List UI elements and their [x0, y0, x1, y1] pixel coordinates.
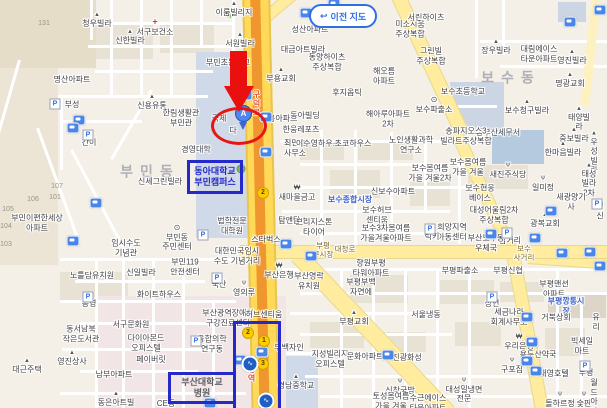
street — [468, 270, 471, 408]
map-label: ▲중보빌라 — [559, 127, 588, 143]
bus-stop-icon[interactable] — [280, 239, 293, 250]
map-label: 보수봄여름 가을 겨울2차 — [408, 163, 451, 182]
villa-icon: ▲ — [505, 99, 549, 106]
street — [354, 130, 357, 248]
highlight-box-donga-campus: 동아대학교 부민캠퍼스 — [187, 160, 243, 194]
map-label: ▲우성빌라 — [588, 131, 601, 176]
villa-icon: ▲ — [565, 106, 593, 113]
street — [58, 95, 208, 98]
road-daecheongro — [240, 245, 607, 259]
bus-stop-icon[interactable] — [529, 233, 542, 244]
street — [455, 105, 497, 108]
building-block — [350, 275, 408, 303]
map-label: 신세그린빌라 — [138, 177, 182, 187]
bus-stop-icon[interactable] — [521, 312, 534, 323]
map-label: ▲영진빌라 — [557, 49, 586, 65]
parking-icon[interactable]: P — [191, 336, 202, 347]
map-label: ▲보수청구빌라 — [505, 99, 549, 115]
red-arrow-shaft — [230, 51, 247, 88]
street — [80, 322, 220, 325]
building-block — [455, 322, 501, 346]
street — [580, 300, 583, 408]
map-label: 보수허브 센티움 — [362, 205, 391, 224]
villa-icon: ▲ — [555, 72, 584, 79]
undo-arrow-icon: ↩ — [320, 11, 328, 22]
map-label: 해오름 아파트 — [373, 66, 395, 85]
bus-stop-icon[interactable] — [521, 356, 534, 367]
parking-icon[interactable]: P — [425, 224, 436, 235]
street — [320, 130, 323, 248]
villa-icon: ▲ — [559, 127, 588, 134]
highlight-box-pnu-hospital: 부산대학교 병원 — [168, 372, 236, 404]
map-label: ▲영진상사 — [57, 350, 86, 366]
bus-stop-icon[interactable] — [594, 261, 607, 272]
villa-icon: ▲ — [545, 141, 582, 148]
street — [110, 89, 153, 160]
map-label: ⊙부민동 주민센터 — [162, 224, 191, 252]
street — [62, 348, 214, 351]
road — [388, 0, 468, 134]
bus-stop-icon[interactable] — [305, 251, 318, 262]
map-label: 한림생활관 부민관 — [163, 108, 200, 127]
villa-icon: ▲ — [588, 131, 601, 138]
map-label: 대림에이스 타운아파트 — [521, 44, 558, 63]
parking-icon[interactable]: P — [198, 230, 209, 241]
bus-stop-icon[interactable] — [530, 366, 543, 377]
street — [95, 70, 213, 73]
street — [556, 268, 559, 408]
building-block — [492, 130, 544, 164]
map-label: 한웅레포츠 — [283, 125, 320, 135]
map-label: ▲태양빌라 — [565, 106, 593, 132]
bus-stop-icon[interactable] — [556, 248, 569, 259]
bus-stop-icon[interactable] — [526, 337, 539, 348]
map-label: Ψ일미정 — [532, 176, 554, 192]
map-label: 새광양기사 — [553, 192, 589, 211]
street — [282, 268, 607, 271]
building-block — [160, 25, 214, 53]
subway-exit-badge[interactable]: 2 — [257, 187, 269, 199]
street — [85, 22, 235, 25]
street — [286, 352, 382, 355]
street — [320, 395, 607, 398]
parking-icon[interactable]: P — [580, 361, 591, 372]
parking-icon[interactable]: P — [83, 292, 94, 303]
street — [502, 0, 505, 55]
previous-map-label: 이전 지도 — [331, 10, 367, 23]
street — [404, 268, 407, 408]
rest-icon: Ψ — [446, 378, 483, 385]
map-label: 임시수도 기념관 — [111, 238, 140, 257]
villa-icon: ▲ — [557, 49, 586, 56]
street — [424, 134, 427, 212]
bus-stop-icon[interactable] — [382, 350, 395, 361]
building-block — [358, 140, 413, 160]
map-label: 탐앤탐스 — [278, 216, 307, 226]
parking-icon[interactable]: P — [212, 273, 223, 284]
map-label: 동양하이츠 주상복합 — [309, 52, 346, 71]
map-label: 명산아파트 — [54, 75, 91, 85]
highlight-box-toseong-station — [233, 321, 281, 408]
bus-stop-icon[interactable] — [485, 229, 498, 240]
bus-stop-icon[interactable] — [584, 247, 597, 258]
street — [300, 163, 480, 166]
building-block — [545, 328, 585, 356]
parking-icon[interactable]: P — [487, 292, 498, 303]
map-label: 동아빌딩 — [290, 111, 319, 121]
parking-icon[interactable]: P — [502, 228, 513, 239]
rest-icon: Ψ — [532, 176, 554, 183]
map-canvas[interactable]: 구덕로 토성역 131▲이룸빌리지▲청우빌라+서구보건소▲신한빌라▲서원빌라성산… — [0, 0, 607, 408]
map-label: ▲한마음빌라 — [545, 141, 582, 157]
street — [475, 0, 478, 78]
map-label: ▲명광교회 — [555, 72, 584, 88]
map-label: 해아루아파트 2차 — [366, 109, 410, 128]
map-label: Ψ대성밀냉면 전문 — [446, 378, 483, 404]
street — [280, 140, 480, 143]
bus-stop-icon[interactable] — [564, 17, 577, 28]
map-label: ▲태성빌라2차 — [580, 162, 598, 197]
map-label: 후지옵틱 — [332, 88, 361, 98]
office-icon: ⊙ — [162, 224, 191, 233]
villa-icon: ▲ — [12, 358, 41, 365]
building-block — [0, 0, 96, 68]
previous-map-button[interactable]: ↩ 이전 지도 — [309, 4, 377, 28]
bus-stop-icon[interactable] — [260, 147, 273, 158]
street — [90, 0, 93, 40]
street — [60, 258, 260, 261]
street — [458, 162, 461, 244]
bus-stop-icon[interactable] — [594, 5, 607, 16]
map-label: ▲대근주택 — [12, 358, 41, 374]
map-label: 부민동 — [120, 164, 180, 181]
parking-icon[interactable]: P — [592, 199, 603, 210]
map-label: 동서남북 작은도서관 — [63, 324, 100, 343]
donga-campus-label: 동아대학교 부민캠퍼스 — [190, 163, 240, 191]
street — [282, 210, 450, 213]
red-arrow-head-icon — [224, 86, 254, 112]
parking-icon[interactable]: P — [50, 99, 61, 110]
street — [300, 186, 470, 189]
highlight-ellipse — [211, 107, 267, 145]
bus-stop-icon[interactable] — [67, 236, 80, 247]
bus-stop-icon[interactable] — [67, 123, 80, 134]
bus-stop-icon[interactable] — [545, 206, 558, 217]
map-label: 부성 — [65, 100, 80, 110]
villa-icon: ▲ — [580, 162, 598, 169]
building-block — [95, 25, 153, 59]
street — [88, 45, 236, 48]
map-label: 대금아트빌라 — [281, 45, 325, 55]
map-label: 월드 아파트 — [588, 378, 601, 408]
parking-icon[interactable]: P — [83, 130, 94, 141]
tree-icon — [226, 9, 235, 18]
pnu-hospital-label: 부산대학교 병원 — [171, 375, 233, 401]
bus-stop-icon[interactable] — [90, 198, 103, 209]
street — [75, 280, 205, 283]
